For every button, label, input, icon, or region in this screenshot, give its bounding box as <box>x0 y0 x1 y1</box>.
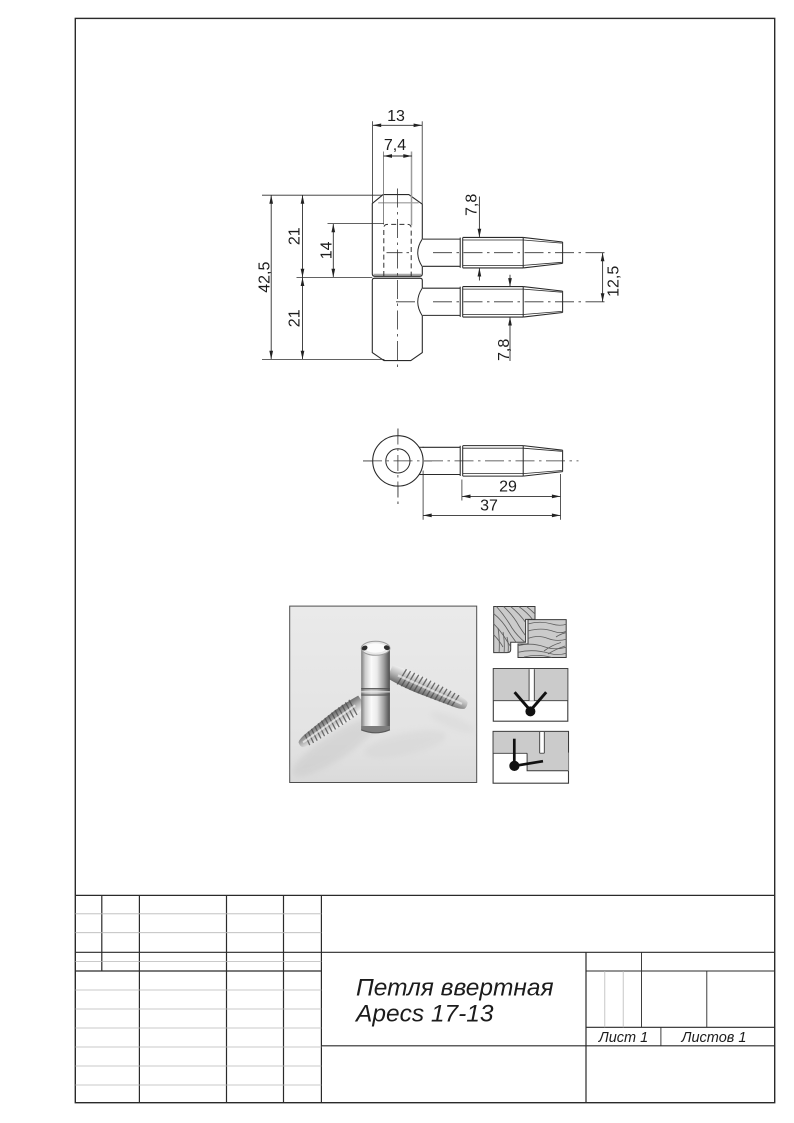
svg-text:7,8: 7,8 <box>463 194 480 216</box>
svg-text:13: 13 <box>387 108 405 125</box>
svg-text:37: 37 <box>480 498 498 515</box>
svg-text:29: 29 <box>499 479 517 496</box>
svg-text:21: 21 <box>286 227 303 245</box>
svg-text:7,4: 7,4 <box>384 137 406 154</box>
svg-text:Лист 1: Лист 1 <box>598 1030 648 1046</box>
svg-text:12,5: 12,5 <box>606 266 623 297</box>
svg-text:14: 14 <box>319 241 336 259</box>
svg-text:Петля ввертная: Петля ввертная <box>356 975 554 1002</box>
svg-text:7,8: 7,8 <box>496 339 513 361</box>
svg-text:Листов 1: Листов 1 <box>681 1030 747 1046</box>
svg-text:21: 21 <box>286 309 303 327</box>
svg-text:42,5: 42,5 <box>257 262 274 293</box>
svg-text:Apecs 17-13: Apecs 17-13 <box>354 1001 494 1028</box>
